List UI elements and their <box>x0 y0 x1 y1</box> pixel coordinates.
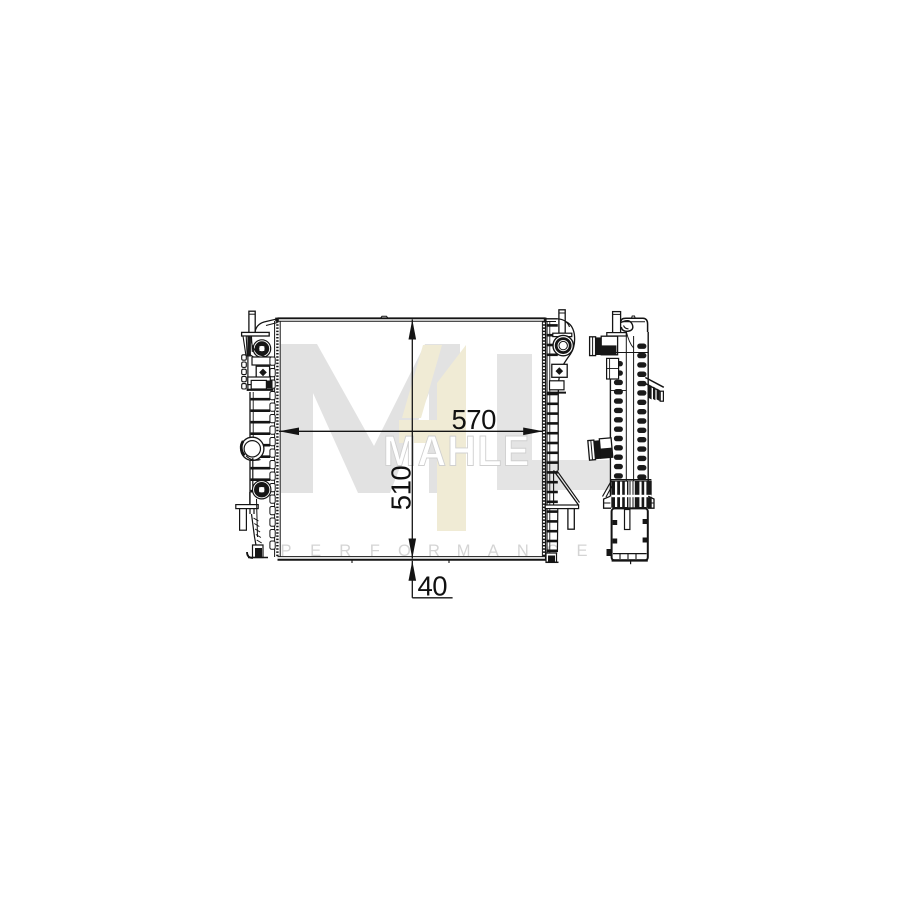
svg-text:N: N <box>517 542 529 560</box>
svg-text:40: 40 <box>418 571 448 602</box>
svg-text:F: F <box>370 542 380 560</box>
svg-text:P: P <box>280 542 291 560</box>
svg-text:E: E <box>310 542 321 560</box>
svg-text:O: O <box>398 542 411 560</box>
svg-text:570: 570 <box>452 404 497 435</box>
svg-text:R: R <box>339 542 351 560</box>
svg-text:E: E <box>576 542 587 560</box>
svg-text:M: M <box>457 542 471 560</box>
svg-text:A: A <box>488 542 499 560</box>
svg-text:510: 510 <box>386 466 417 511</box>
svg-text:R: R <box>428 542 440 560</box>
